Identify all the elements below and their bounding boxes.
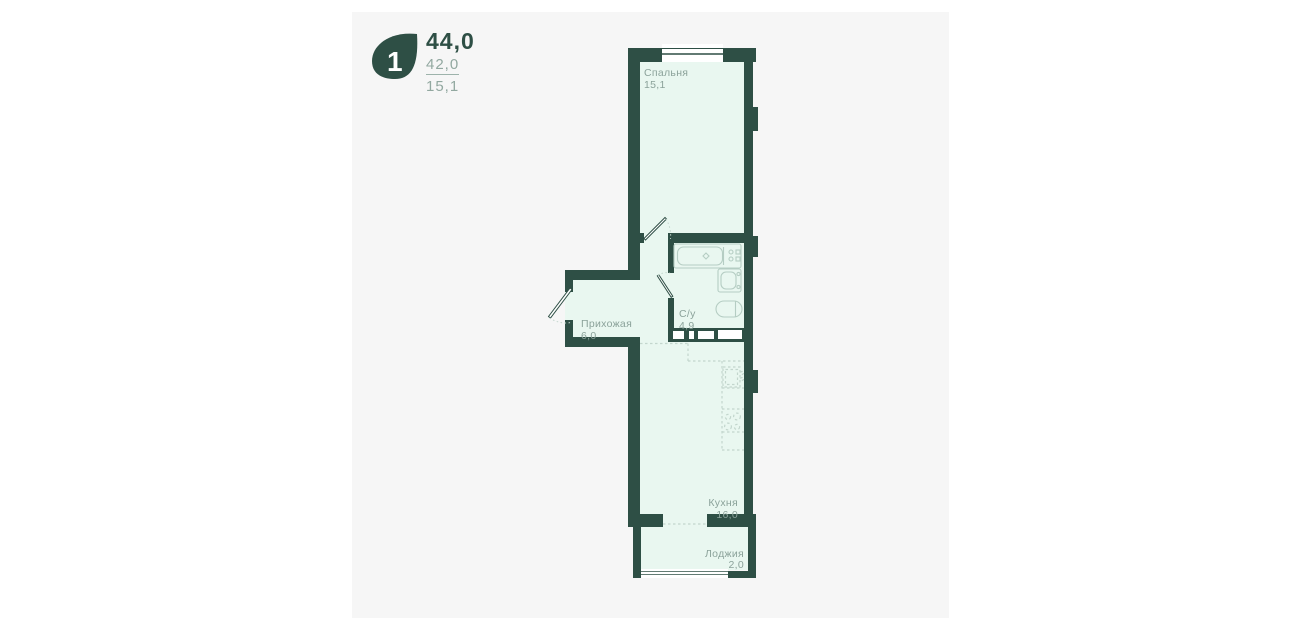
bedroom-window [662, 44, 723, 62]
loggia-right-wall [748, 527, 756, 578]
loggia-area: 2,0 [729, 559, 745, 571]
right-wall-pilaster-mid [753, 236, 758, 257]
kitchen-bottom-wall-left [628, 514, 663, 527]
floorplan-drawing: Спальня 15,1 Прихожая 6,0 С/у 4,9 Кухня … [0, 0, 1301, 630]
bathroom-top-wall [668, 233, 744, 243]
hallway-top-wall [565, 270, 640, 280]
duct-box-3 [698, 331, 714, 339]
left-wall-lower [628, 337, 640, 527]
bathroom-area: 4,9 [679, 320, 695, 332]
bathroom-left-wall-lower [668, 298, 674, 332]
right-wall-pilaster-top [753, 107, 758, 131]
floorplan-page: 1 44,0 42,0 15,1 [0, 0, 1301, 630]
duct-box-1 [673, 331, 684, 339]
hallway-label: Прихожая [581, 318, 632, 330]
loggia-bottom-corner-block [728, 571, 756, 578]
bedroom-area: 15,1 [644, 79, 666, 91]
right-wall [744, 48, 753, 515]
right-wall-pilaster-low [753, 370, 758, 393]
kitchen-label: Кухня [708, 497, 738, 509]
kitchen-loggia-opening-area [663, 514, 707, 527]
bedroom-bottom-wall-stub [628, 233, 644, 243]
hallway-area: 6,0 [581, 330, 597, 342]
loggia-window [641, 569, 728, 578]
kitchen-area: 16,0 [716, 509, 738, 521]
bedroom-label: Спальня [644, 67, 688, 79]
left-wall-upper [628, 48, 640, 280]
main-rooms-area [640, 62, 744, 514]
bathroom-label: С/у [679, 308, 696, 320]
duct-box-2 [689, 331, 694, 339]
duct-box-4 [718, 330, 742, 339]
loggia-left-wall [633, 527, 641, 578]
